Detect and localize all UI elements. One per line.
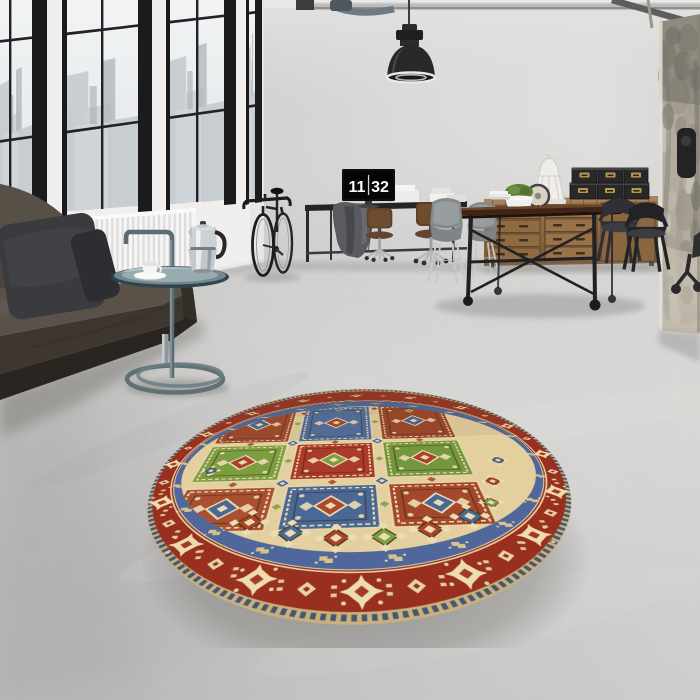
svg-text:11: 11 <box>349 179 366 196</box>
svg-text:32: 32 <box>371 179 389 196</box>
